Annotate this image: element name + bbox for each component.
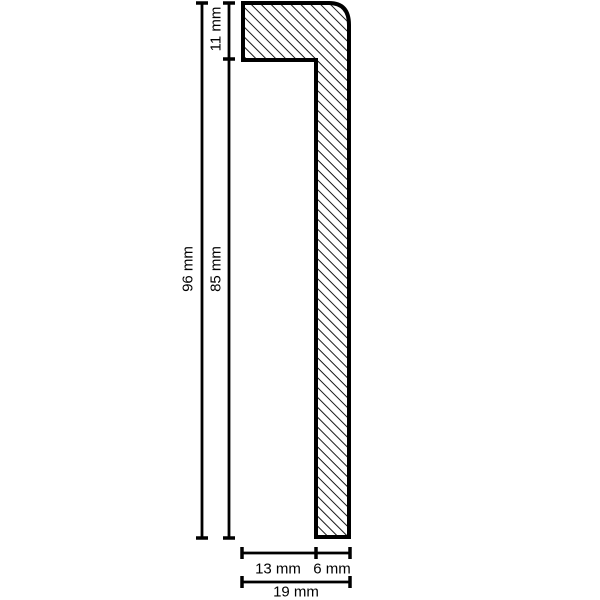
dim-label-total-height: 96 mm bbox=[180, 246, 197, 292]
dim-label-bottom-left-width: 13 mm bbox=[255, 561, 301, 578]
dim-label-bottom-right-width: 6 mm bbox=[313, 561, 351, 578]
dim-label-lower-height: 85 mm bbox=[208, 246, 225, 292]
profile-dimension-drawing: 11 mm 96 mm 85 mm 13 mm 6 mm 19 mm bbox=[0, 0, 600, 600]
dimension-line-total-height bbox=[196, 3, 208, 538]
dimension-line-bottom-widths bbox=[242, 547, 350, 559]
dim-label-upper-height: 11 mm bbox=[208, 7, 225, 52]
dimension-line-upper-lower-height bbox=[223, 3, 235, 538]
profile-cross-section-shape bbox=[243, 3, 349, 537]
technical-drawing-canvas: 11 mm 96 mm 85 mm 13 mm 6 mm 19 mm bbox=[0, 0, 600, 600]
dim-label-total-width: 19 mm bbox=[273, 584, 319, 600]
